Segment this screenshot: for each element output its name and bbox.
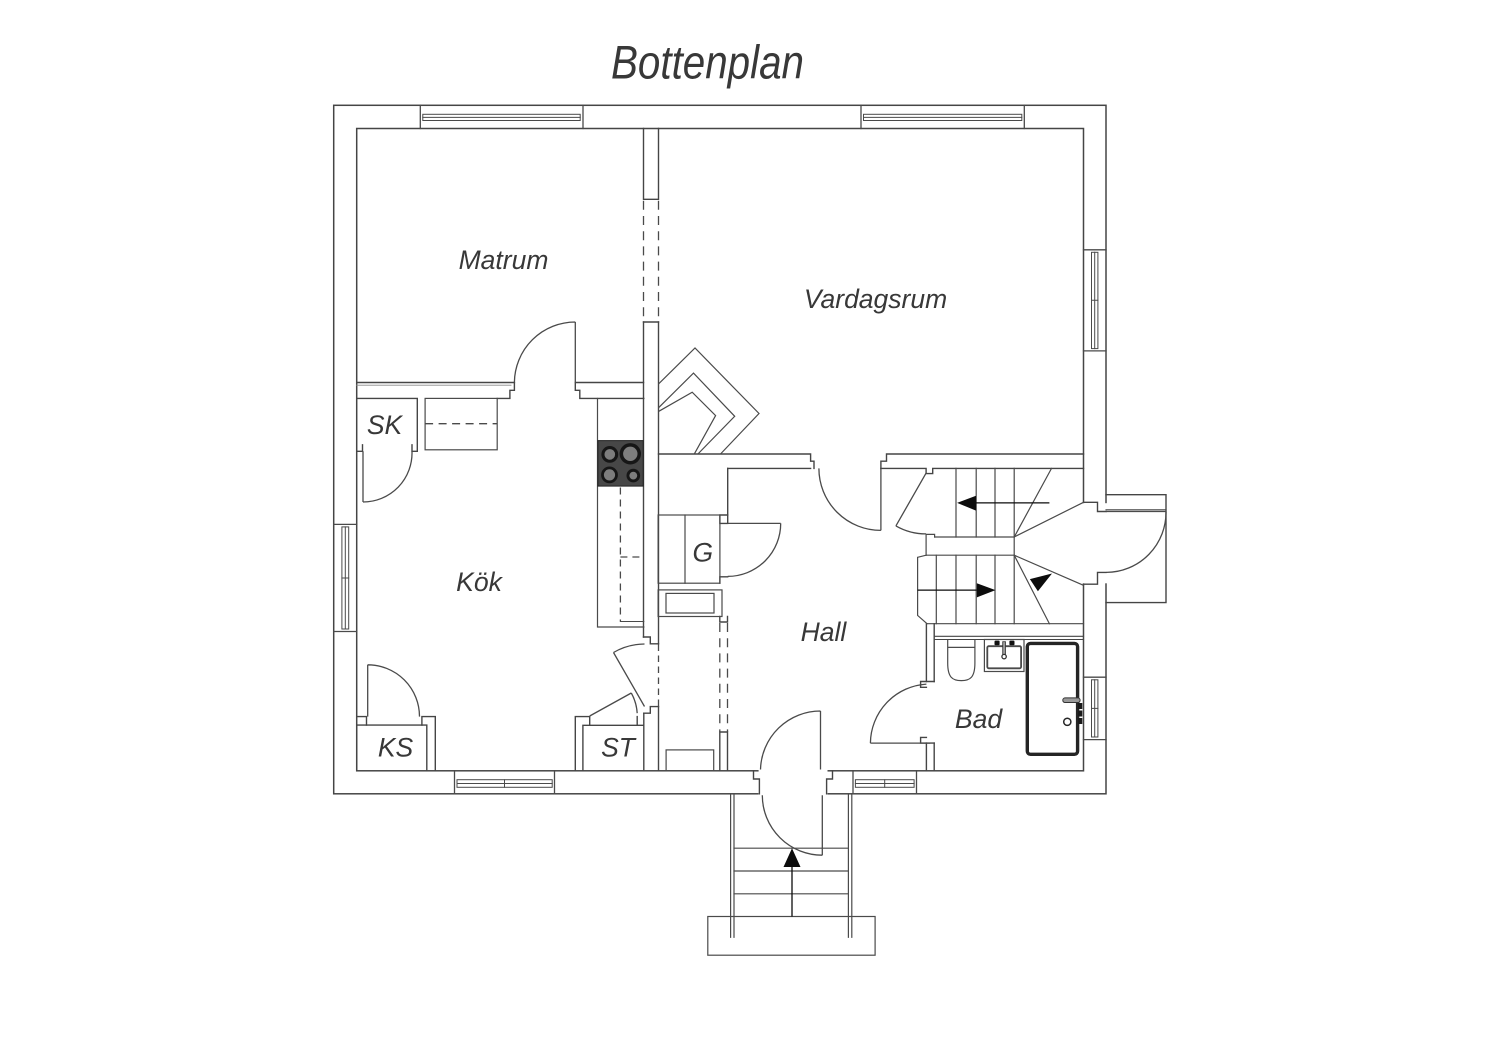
- svg-text:SK: SK: [367, 410, 404, 440]
- svg-text:Hall: Hall: [801, 617, 848, 647]
- svg-text:KS: KS: [378, 733, 414, 763]
- svg-text:ST: ST: [601, 733, 637, 763]
- svg-text:Vardagsrum: Vardagsrum: [804, 284, 947, 314]
- svg-text:Bottenplan: Bottenplan: [611, 37, 804, 90]
- svg-text:G: G: [692, 538, 713, 568]
- svg-text:Kök: Kök: [456, 567, 503, 597]
- svg-text:Bad: Bad: [955, 704, 1003, 734]
- svg-text:Matrum: Matrum: [459, 245, 549, 275]
